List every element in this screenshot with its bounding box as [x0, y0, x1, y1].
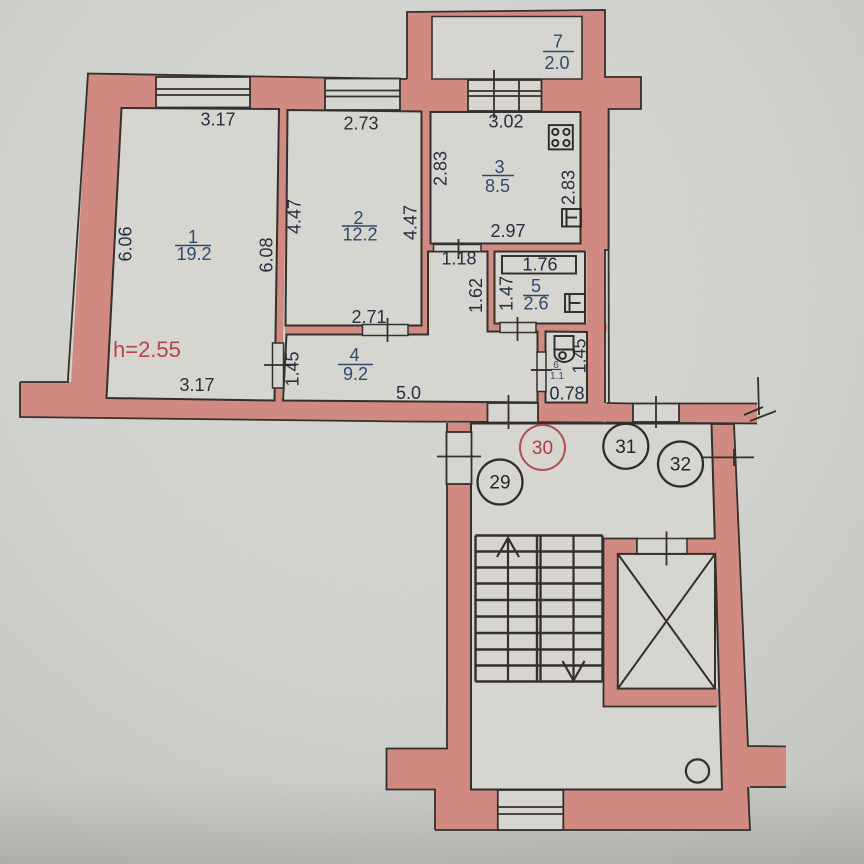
- svg-text:32: 32: [670, 455, 691, 476]
- svg-text:1.45: 1.45: [283, 351, 303, 386]
- svg-text:1.76: 1.76: [522, 255, 557, 275]
- svg-text:1.18: 1.18: [441, 249, 476, 269]
- svg-text:19.2: 19.2: [176, 244, 211, 264]
- svg-text:3.17: 3.17: [200, 110, 235, 130]
- svg-text:1.45: 1.45: [570, 338, 590, 373]
- svg-text:31: 31: [615, 437, 636, 458]
- svg-text:7: 7: [553, 32, 563, 52]
- svg-text:3: 3: [494, 157, 504, 177]
- svg-text:2.83: 2.83: [431, 151, 451, 186]
- svg-text:4: 4: [349, 345, 359, 365]
- svg-text:12.2: 12.2: [342, 225, 377, 245]
- svg-text:2.0: 2.0: [544, 53, 569, 73]
- svg-text:2.97: 2.97: [490, 221, 525, 241]
- svg-text:4.47: 4.47: [401, 205, 421, 240]
- svg-text:h=2.55: h=2.55: [113, 337, 181, 362]
- svg-text:5.0: 5.0: [396, 383, 421, 403]
- svg-text:2.6: 2.6: [523, 294, 548, 314]
- svg-text:9.2: 9.2: [343, 364, 368, 384]
- svg-text:4.47: 4.47: [285, 199, 305, 234]
- svg-text:1.62: 1.62: [466, 278, 486, 313]
- svg-text:6.08: 6.08: [257, 237, 277, 272]
- svg-text:29: 29: [489, 473, 510, 494]
- svg-text:1.1: 1.1: [550, 371, 564, 382]
- svg-text:8.5: 8.5: [485, 176, 510, 196]
- svg-text:30: 30: [532, 438, 553, 459]
- svg-text:6.06: 6.06: [116, 226, 136, 261]
- svg-text:3.17: 3.17: [179, 375, 214, 395]
- svg-text:0.78: 0.78: [549, 384, 584, 404]
- svg-text:3.02: 3.02: [488, 112, 523, 132]
- svg-text:2.71: 2.71: [351, 307, 386, 327]
- svg-text:1.47: 1.47: [497, 276, 517, 311]
- svg-text:2.73: 2.73: [343, 114, 378, 134]
- svg-text:2.83: 2.83: [559, 170, 579, 205]
